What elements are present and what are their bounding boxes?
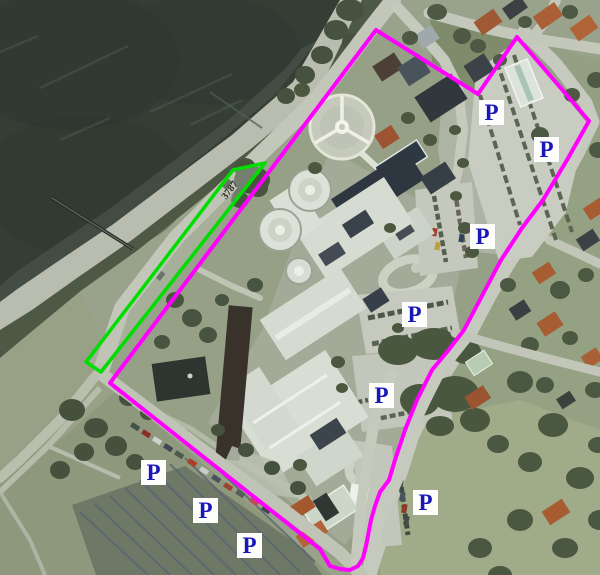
- svg-text:P: P: [198, 498, 212, 523]
- svg-text:P: P: [418, 490, 432, 515]
- svg-text:P: P: [242, 533, 256, 558]
- svg-text:P: P: [475, 224, 489, 249]
- svg-text:P: P: [484, 100, 498, 125]
- svg-text:P: P: [146, 460, 160, 485]
- svg-text:P: P: [407, 302, 421, 327]
- svg-text:P: P: [374, 383, 388, 408]
- svg-text:P: P: [539, 137, 553, 162]
